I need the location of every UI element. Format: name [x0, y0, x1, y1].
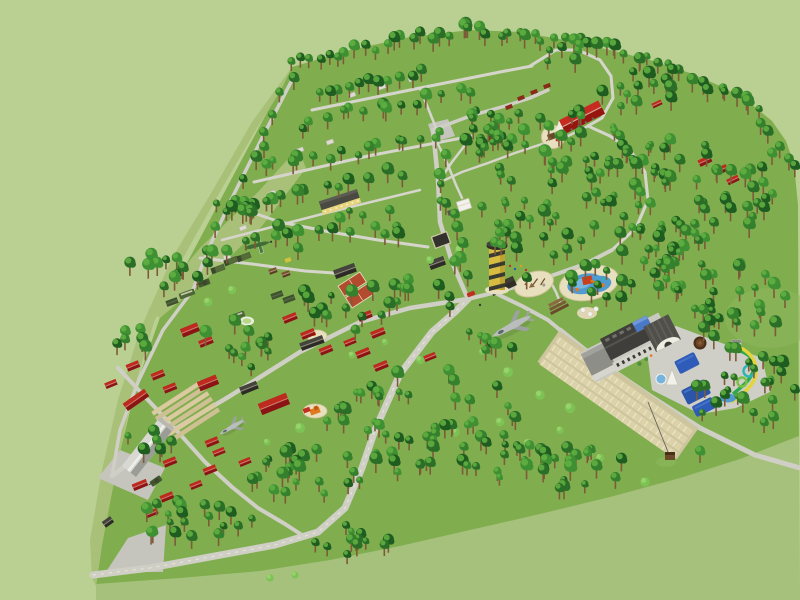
bush — [556, 426, 563, 433]
holiday-park-map — [0, 0, 800, 600]
bush — [266, 574, 273, 581]
bush — [535, 390, 545, 400]
bush — [640, 477, 649, 486]
person-figure — [479, 304, 481, 306]
bush — [382, 339, 388, 345]
bush — [348, 351, 355, 358]
excavator-sand-pit[interactable] — [303, 404, 327, 418]
person-figure — [514, 268, 516, 270]
person-figure — [520, 265, 522, 267]
bush — [416, 356, 425, 365]
bush — [228, 286, 236, 294]
person-figure — [509, 265, 511, 267]
bush — [204, 298, 213, 307]
park-map-canvas — [0, 0, 800, 600]
bush — [503, 367, 513, 377]
bush — [291, 571, 298, 578]
bush — [426, 256, 434, 264]
person-figure — [525, 269, 527, 271]
bush — [264, 439, 271, 446]
kiddie-pool[interactable] — [656, 374, 666, 384]
bush — [295, 423, 305, 433]
bush — [565, 403, 575, 413]
garden-pond — [240, 317, 254, 326]
bush — [496, 418, 505, 427]
